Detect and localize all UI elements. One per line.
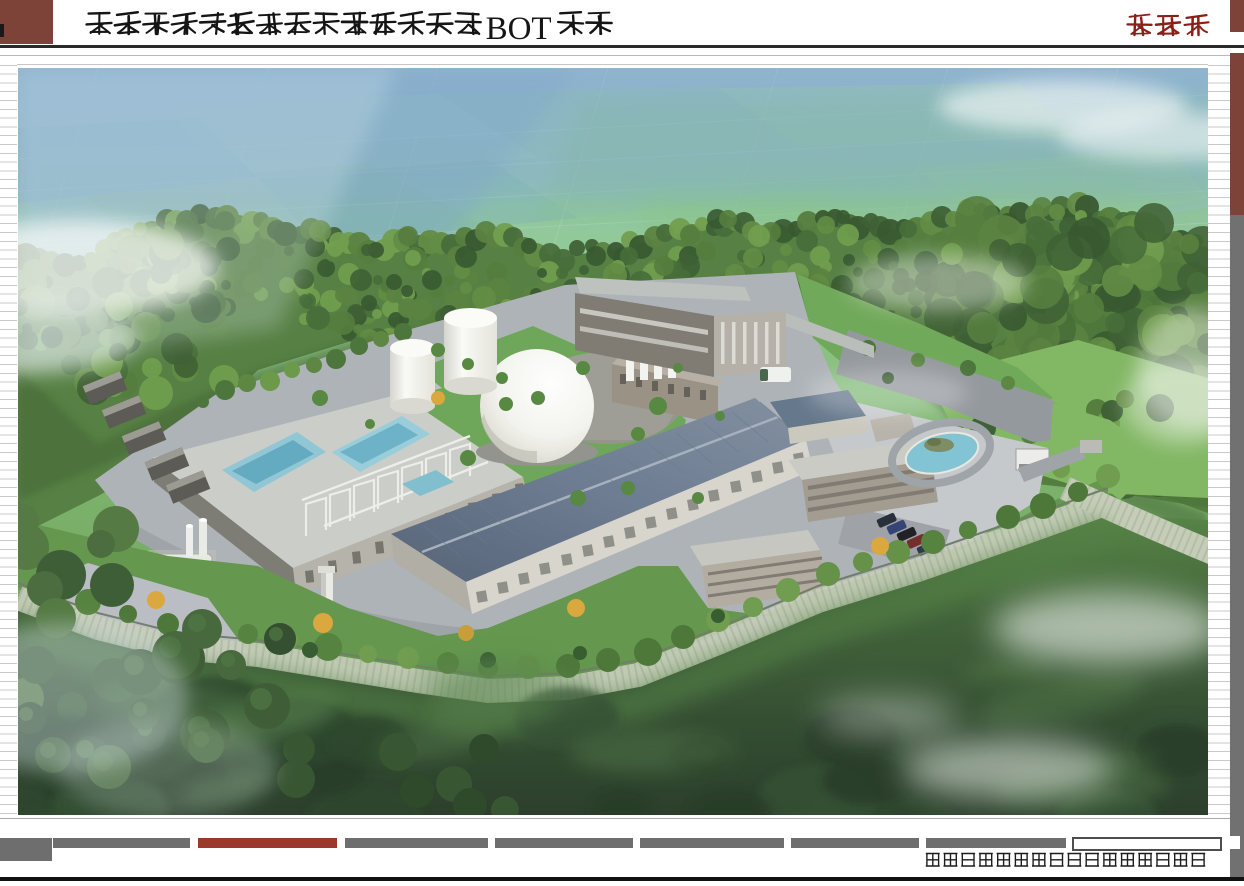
svg-text:BOT: BOT — [486, 11, 552, 47]
